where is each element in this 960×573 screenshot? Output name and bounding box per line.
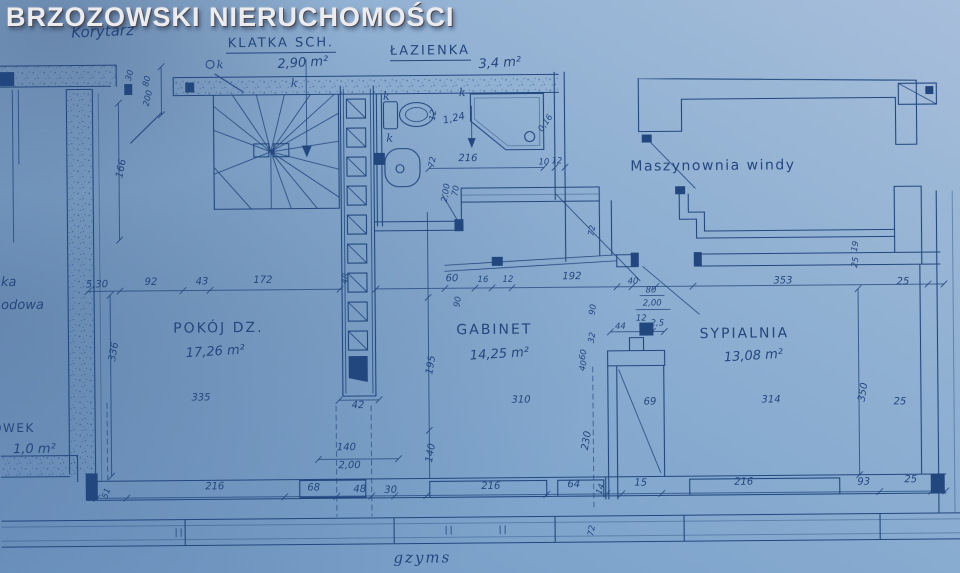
dimension-label: 216 — [481, 481, 500, 492]
room-label-maszynownia: Maszynownia windy — [630, 157, 795, 174]
vent-marker-label: k — [459, 86, 466, 99]
floor-plan-drawing: Korytarz KLATKA SCH. 2,90 m² ŁAZIENKA 3,… — [0, 0, 960, 573]
vent-marker-label: k — [291, 77, 298, 90]
dimension-label: 60 — [578, 349, 590, 361]
dimension-label: 19 — [850, 240, 862, 252]
blueprint-photo: Korytarz KLATKA SCH. 2,90 m² ŁAZIENKA 3,… — [0, 0, 960, 573]
vent-marker-label: k — [386, 132, 393, 145]
dimension-label: 15 — [634, 478, 647, 489]
dimension-label: 42 — [352, 400, 365, 411]
dimension-label: 25 — [850, 256, 862, 268]
dimension-label: 310 — [511, 395, 530, 406]
dimension-label: 25 — [894, 396, 907, 407]
dimension-label: 40 — [628, 277, 639, 287]
dimension-label: 90 — [587, 304, 599, 316]
room-label-klatka: KLATKA SCH. — [228, 35, 334, 51]
dimension-label: 314 — [761, 394, 780, 405]
dimension-label: 140 — [337, 442, 356, 453]
dimension-label: 216 — [458, 153, 477, 164]
dimension-label: 70 — [450, 185, 462, 197]
dimension-label: 72 — [427, 156, 439, 168]
dimension-label: 12 — [551, 156, 562, 166]
dimension-label: 335 — [191, 392, 210, 403]
dimension-label: 43 — [196, 276, 209, 287]
dimension-label: 216 — [734, 477, 753, 488]
dimension-label: 69 — [644, 396, 657, 407]
dimension-label: 30 — [384, 485, 397, 496]
dimension-label: 12 — [502, 275, 513, 285]
annotation-fragment-2: odowa — [1, 298, 44, 313]
watermark: BRZOZOWSKI NIERUCHOMOŚCI — [6, 2, 455, 33]
room-label-pokoj: POKÓJ DZ. — [173, 318, 263, 337]
room-label-lazienka: ŁAZIENKA — [389, 43, 470, 59]
dimension-label: 5,30 — [86, 279, 108, 290]
vent-marker-label: k — [383, 90, 390, 103]
dimension-label: 92 — [145, 277, 158, 288]
dimension-label: 12 — [428, 109, 440, 121]
dimension-label: 80 — [646, 285, 657, 295]
dimension-label: 2,00 — [643, 298, 662, 308]
vent-marker-label: k — [217, 58, 224, 71]
dimension-label: 72 — [586, 525, 598, 537]
dimension-label: 32 — [587, 332, 599, 344]
dimension-label: 192 — [562, 271, 581, 282]
room-label-sypialnia: SYPIALNIA — [700, 325, 790, 342]
dimension-label: 72 — [587, 225, 599, 237]
dimension-label: 60 — [446, 273, 459, 284]
lazienka-underline — [390, 60, 471, 61]
room-area-schowek: 1,0 m² — [13, 442, 56, 457]
dimension-label: 90 — [452, 296, 464, 308]
room-label-schowek: CHOWEK — [0, 421, 35, 436]
dimension-label: 25 — [897, 276, 910, 287]
dimension-label: 93 — [857, 477, 870, 488]
dimension-label: 12 — [636, 314, 647, 324]
dimension-label: 44 — [615, 322, 626, 332]
dimension-label: 172 — [253, 275, 272, 286]
dimension-label: 2,5 — [651, 318, 665, 328]
dimension-label: 16 — [477, 275, 488, 285]
annotation-gzyms: gzyms — [393, 548, 451, 567]
annotation-fragment-1: ka — [1, 275, 17, 290]
dimension-label: 25 — [904, 474, 917, 485]
room-label-gabinet: GABINET — [456, 322, 532, 339]
dimension-label: 64 — [567, 479, 580, 490]
room-area-klatka: 2,90 m² — [277, 54, 329, 72]
dimension-label: 40 — [578, 360, 590, 372]
dimension-label: 216 — [205, 481, 224, 492]
dimension-label: 10 — [538, 157, 549, 167]
dimension-label: 2,00 — [338, 460, 360, 471]
dimension-label: 68 — [307, 482, 320, 493]
dimension-label: 353 — [773, 275, 792, 286]
dimension-label: 48 — [353, 484, 366, 495]
room-area-lazienka: 3,4 m² — [478, 55, 522, 73]
